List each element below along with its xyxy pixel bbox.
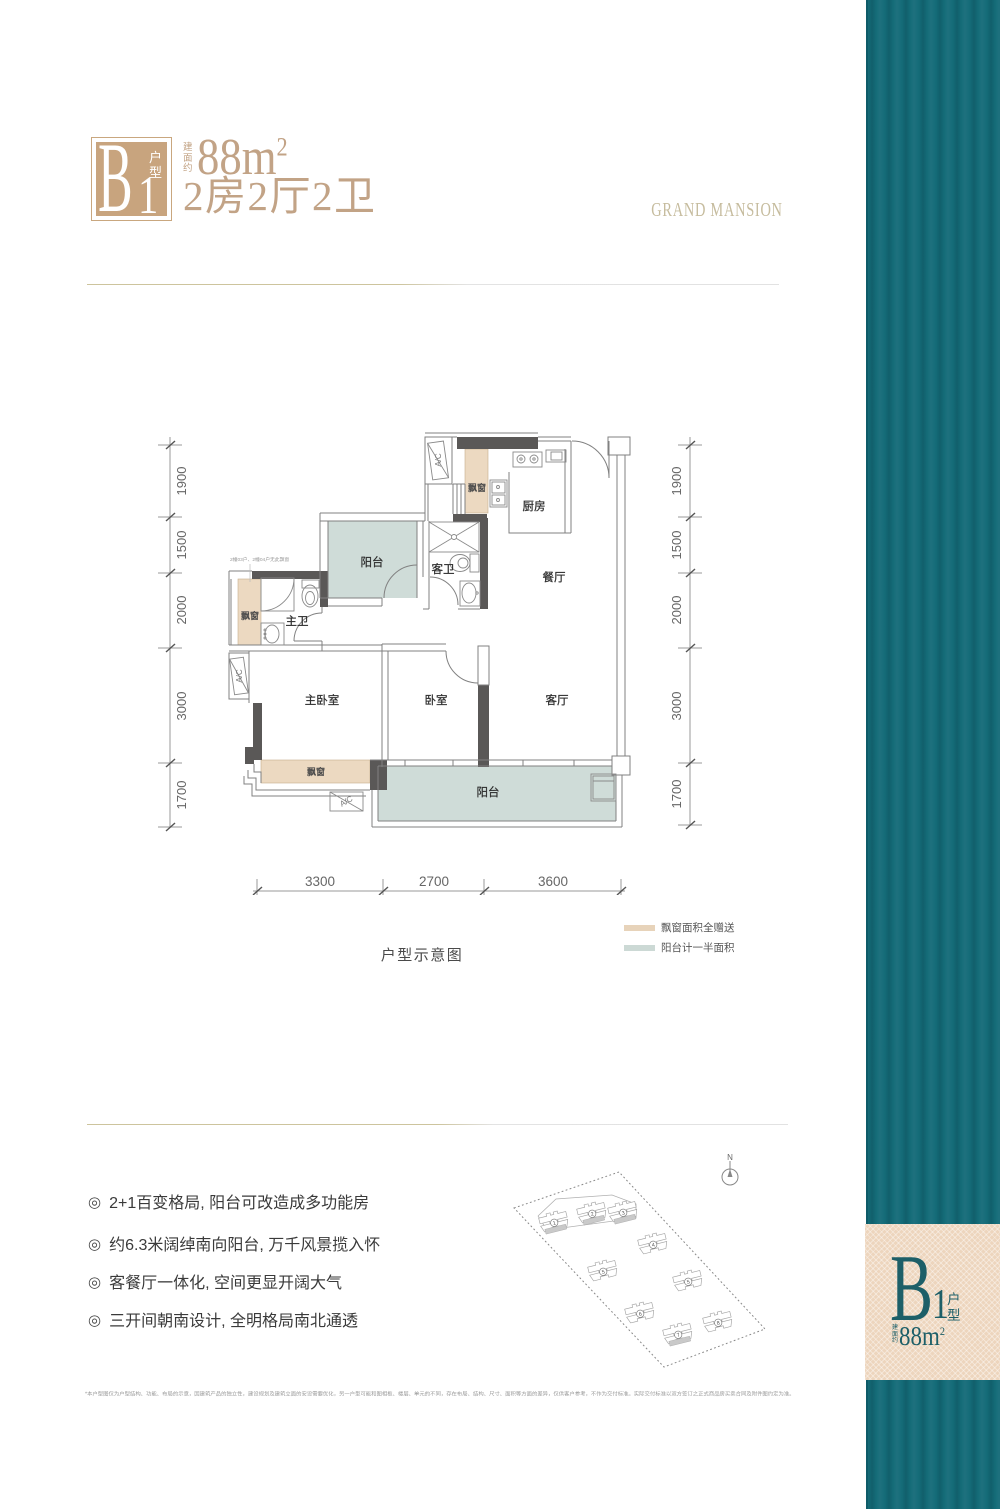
svg-text:2000: 2000 — [174, 596, 189, 625]
svg-text:阳台: 阳台 — [361, 555, 384, 569]
svg-text:主卫: 主卫 — [286, 615, 309, 628]
svg-text:阳台: 阳台 — [477, 785, 500, 799]
svg-text:客厅: 客厅 — [546, 693, 569, 707]
svg-text:厨房: 厨房 — [523, 500, 546, 513]
svg-text:主卧室: 主卧室 — [305, 693, 340, 707]
svg-text:1500: 1500 — [669, 531, 684, 560]
svg-text:3600: 3600 — [538, 874, 568, 889]
svg-text:卧室: 卧室 — [425, 693, 448, 707]
svg-text:1900: 1900 — [669, 467, 684, 496]
svg-text:1700: 1700 — [174, 781, 189, 810]
svg-text:2幢03户、2幢04户无此飘窗: 2幢03户、2幢04户无此飘窗 — [230, 556, 289, 563]
svg-text:2700: 2700 — [419, 874, 449, 889]
svg-text:1700: 1700 — [669, 780, 684, 809]
svg-text:1500: 1500 — [174, 531, 189, 560]
svg-text:飘窗: 飘窗 — [468, 482, 486, 493]
svg-text:2000: 2000 — [669, 596, 684, 625]
svg-text:3000: 3000 — [174, 692, 189, 721]
svg-text:3300: 3300 — [305, 874, 335, 889]
svg-text:飘窗: 飘窗 — [241, 610, 259, 621]
svg-text:3000: 3000 — [669, 692, 684, 721]
svg-text:1900: 1900 — [174, 467, 189, 496]
svg-text:A/C: A/C — [235, 669, 244, 683]
svg-text:餐厅: 餐厅 — [543, 570, 566, 584]
svg-text:N: N — [727, 1153, 733, 1162]
svg-text:飘窗: 飘窗 — [307, 766, 325, 777]
svg-text:A/C: A/C — [434, 453, 443, 467]
svg-text:客卫: 客卫 — [432, 562, 455, 576]
